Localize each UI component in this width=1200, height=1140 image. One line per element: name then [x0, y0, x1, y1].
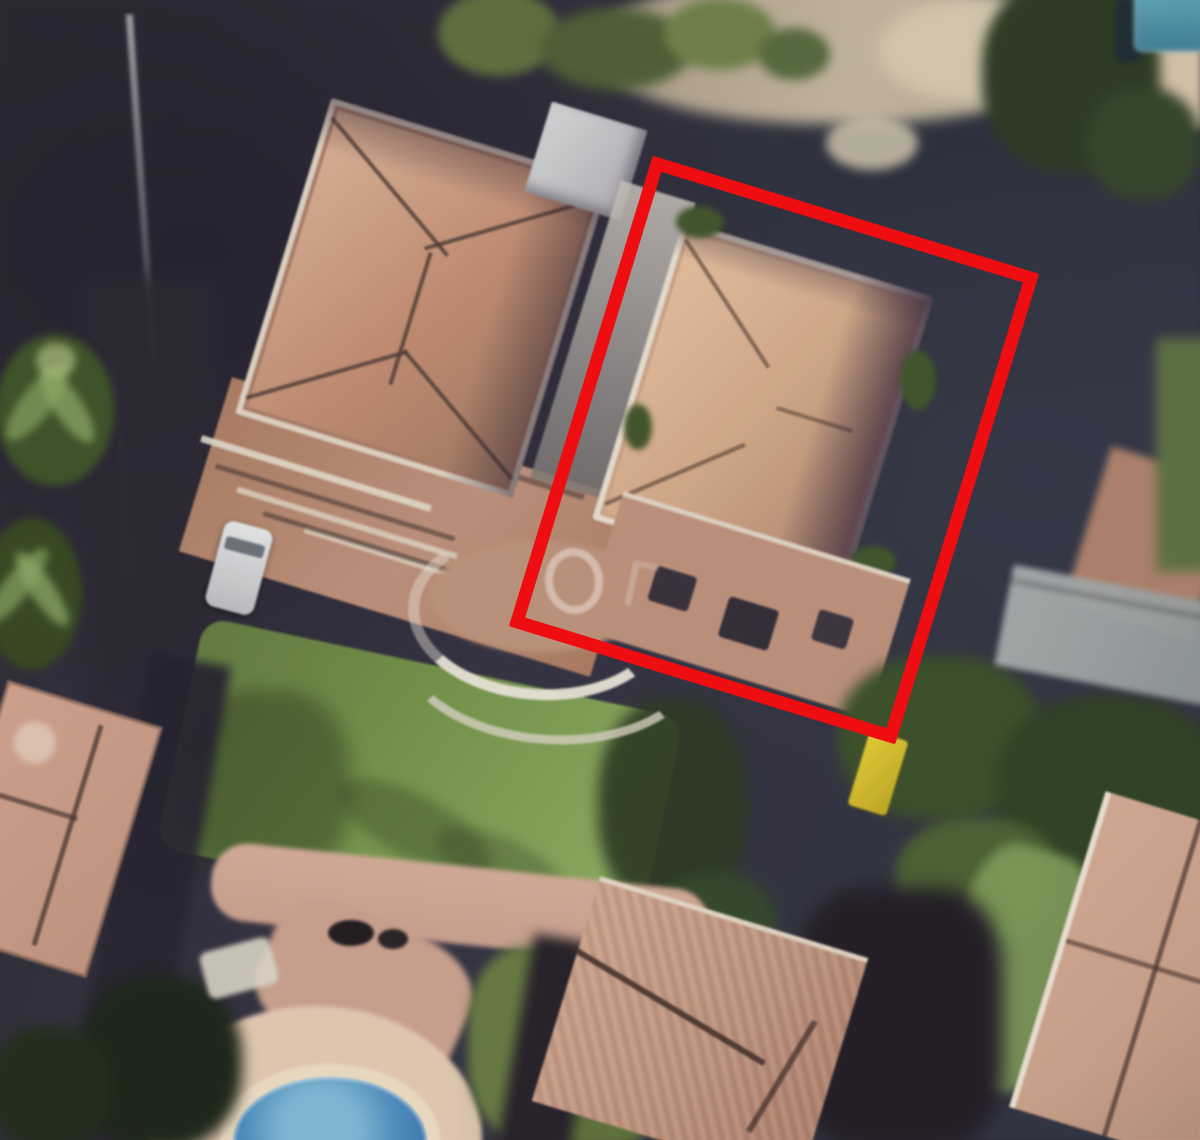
aerial-photo: [0, 0, 1200, 1140]
